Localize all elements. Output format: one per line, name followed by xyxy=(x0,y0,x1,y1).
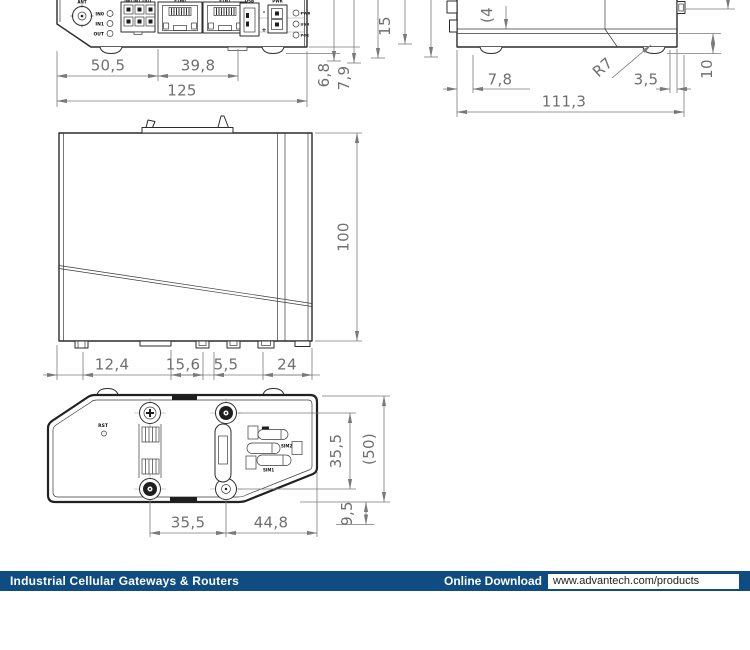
polarity-plus: + xyxy=(261,26,266,34)
din-clip-tab-lower xyxy=(450,20,458,32)
front-view: ANT IN0 IN1 OUT IN0 IN1 OUT ETH0 xyxy=(57,0,310,54)
antenna-connector: ANT xyxy=(71,0,94,28)
footer-download-label: Online Download xyxy=(444,574,542,588)
dim-bottom-v1: 35,5 xyxy=(327,434,345,469)
sim1-label: SIM1 xyxy=(263,468,274,473)
front-bottom-latch xyxy=(228,47,247,51)
sim-card-icon-2 xyxy=(247,443,280,454)
dim-top-s3: 5,5 xyxy=(214,356,239,374)
screw-boss-bottom-left xyxy=(140,479,161,500)
dim-side-vleft: 15 xyxy=(376,16,394,36)
dim-bottom-w2: 44,8 xyxy=(254,514,289,532)
power-connector: PWR - + xyxy=(261,0,287,34)
dim-top-s4: 24 xyxy=(277,356,297,374)
dim-side-total: 111,3 xyxy=(542,93,586,111)
screw-boss-top-left xyxy=(140,403,161,424)
front-foot-right xyxy=(262,47,284,54)
led-label-usr: USR xyxy=(301,22,310,27)
top-view xyxy=(59,116,312,348)
bottom-view: RST SIM2 SIM1 xyxy=(48,389,317,505)
led-indicators: PWR USR POE xyxy=(293,10,310,38)
screw-boss-top-right xyxy=(216,403,237,424)
dim-top-s2: 15,6 xyxy=(166,356,201,374)
dim-side-base: 10 xyxy=(698,59,716,79)
usb-port: USB xyxy=(240,0,259,36)
eth0-port: ETH0 xyxy=(158,0,202,33)
polarity-minus: - xyxy=(263,8,266,16)
dim-side-inset: 7,8 xyxy=(488,71,513,89)
dim-front-w2: 39,8 xyxy=(181,57,216,75)
dim-bottom-w1: 35,5 xyxy=(171,514,206,532)
pwr-conn-label: PWR xyxy=(272,0,282,4)
side-view-dimensions: 15 (4 7,8 R7 3,5 111,3 10 xyxy=(376,0,735,117)
dim-front-hclip: 7,9 xyxy=(335,66,353,91)
footer-url-box[interactable]: www.advantech.com/products xyxy=(548,574,739,589)
din-clip-tab-upper xyxy=(447,1,457,13)
side-front-connector xyxy=(677,2,685,14)
io-terminal-block: IN0 IN1 OUT xyxy=(121,0,155,35)
io-label-in1: IN1 xyxy=(95,22,104,28)
ant-label: ANT xyxy=(77,0,86,5)
led-label-pwr: PWR xyxy=(301,11,311,16)
side-foot-right xyxy=(643,47,665,54)
din-rail-clip-top xyxy=(142,116,233,133)
dim-top-height: 100 xyxy=(335,222,353,252)
datasheet-drawing-page: ANT IN0 IN1 OUT IN0 IN1 OUT ETH0 xyxy=(0,0,750,650)
dim-bottom-v2: (50) xyxy=(360,433,378,465)
dim-front-w1: 50,5 xyxy=(91,57,126,75)
io-label-out: OUT xyxy=(93,32,104,38)
footer-url-link[interactable]: www.advantech.com/products xyxy=(553,575,699,587)
sim2-label: SIM2 xyxy=(281,444,292,449)
dim-front-hfoot: 6,8 xyxy=(315,63,333,88)
dim-side-vtop: (4 xyxy=(478,7,496,23)
dim-side-chamfer: 3,5 xyxy=(634,71,659,89)
front-foot-left xyxy=(100,47,122,54)
led-label-poe: POE xyxy=(301,33,310,38)
dim-bottom-v3: 9,5 xyxy=(338,501,356,526)
footer-bar: Industrial Cellular Gateways & Routers O… xyxy=(0,571,750,591)
side-foot-left xyxy=(480,47,502,54)
reset-label: RST xyxy=(98,423,109,429)
dimensional-drawing: ANT IN0 IN1 OUT IN0 IN1 OUT ETH0 xyxy=(0,0,750,650)
top-view-bottom-tabs xyxy=(75,341,310,348)
footer-category-label: Industrial Cellular Gateways & Routers xyxy=(0,574,239,588)
io-label-in0: IN0 xyxy=(95,12,104,18)
din-clip-slot xyxy=(215,424,231,482)
dim-front-total: 125 xyxy=(167,82,197,100)
dim-top-s1: 12,4 xyxy=(95,356,130,374)
io-indicators: IN0 IN1 OUT xyxy=(93,11,113,38)
top-body-outline xyxy=(59,133,312,341)
sim-card-icon-3 xyxy=(257,455,291,466)
dim-side-radius: R7 xyxy=(589,54,616,81)
sim-card-icon-1 xyxy=(258,430,288,440)
